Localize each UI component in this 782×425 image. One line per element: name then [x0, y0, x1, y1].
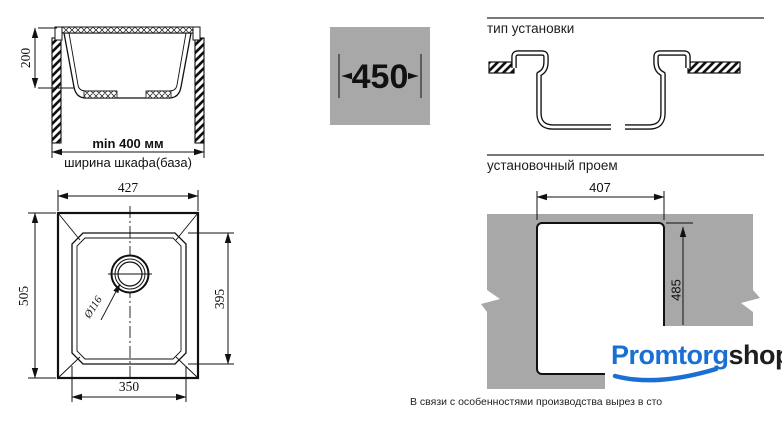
sink-bowl-outline: [64, 33, 191, 98]
sink-bowl-inner-right: [146, 33, 186, 91]
sink-bottom-hatch-right: [146, 91, 171, 98]
cabinet-cross-section: 200 min 400 мм ширина шкафа(база): [18, 27, 204, 170]
overall-depth-label: 505: [16, 286, 31, 307]
installation-heading: тип установки: [487, 21, 574, 36]
sink-profile-right-core: [625, 53, 688, 127]
logo-text-secondary: shop: [729, 340, 782, 370]
cabinet-wall-left-hatch: [52, 38, 61, 143]
sink-rim-lip-right: [193, 27, 200, 40]
sink-profile-left-core: [514, 53, 611, 127]
countertop-bar-right: [688, 62, 740, 73]
logo-text: Promtorgshop: [611, 340, 782, 370]
drawing-canvas: 200 min 400 мм ширина шкафа(база) 450 ти…: [0, 0, 782, 425]
sink-bottom-hatch-left: [84, 91, 117, 98]
opening-height-label: 485: [668, 279, 683, 301]
cabinet-size-square: 450: [330, 27, 430, 125]
logo-text-primary: Promtorg: [611, 340, 729, 370]
sink-rim-lip-left: [55, 27, 62, 40]
cabinet-size-value: 450: [352, 58, 409, 96]
bowl-width-label: 350: [119, 379, 140, 394]
depth-dimension-label: 200: [18, 48, 33, 69]
sink-rim-section: [62, 27, 193, 33]
min-width-label: min 400 мм: [92, 136, 163, 151]
bowl-depth-label: 395: [212, 289, 227, 310]
opening-width-label: 407: [589, 180, 611, 195]
cabinet-width-label: ширина шкафа(база): [64, 155, 192, 170]
countertop-bar-left: [489, 62, 514, 73]
sink-spec-sheet: 200 min 400 мм ширина шкафа(база) 450 ти…: [0, 0, 782, 425]
sink-profile-left-outline: [514, 53, 611, 127]
opening-heading: установочный проем: [487, 158, 618, 173]
cabinet-wall-right-hatch: [195, 38, 204, 143]
installation-type-section: тип установки: [487, 18, 764, 127]
footnote: В связи с особенностями производства выр…: [410, 396, 662, 408]
sink-bowl-inner-left: [69, 33, 117, 91]
overall-width-label: 427: [118, 180, 139, 195]
sink-top-view: Ø116 427 505 395 350: [16, 180, 234, 402]
